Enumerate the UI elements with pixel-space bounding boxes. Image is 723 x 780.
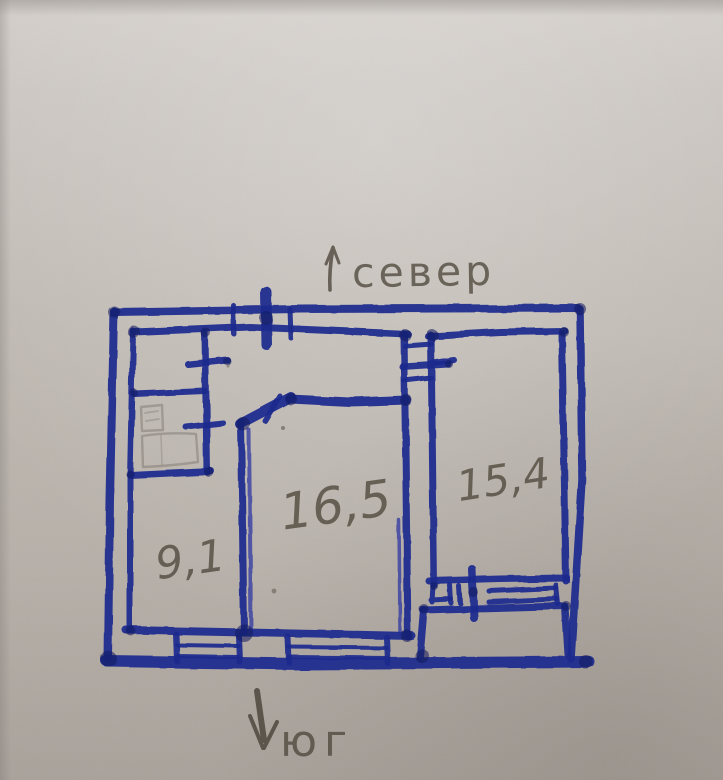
south-label: юг [280, 716, 354, 767]
floor-plan-photo: север юг 9,1 16,5 15,4 [0, 0, 723, 780]
room-label-9-1: 9,1 [152, 530, 228, 590]
north-label: север [352, 247, 496, 297]
floor-plan-drawing: север юг 9,1 16,5 15,4 [0, 0, 723, 780]
